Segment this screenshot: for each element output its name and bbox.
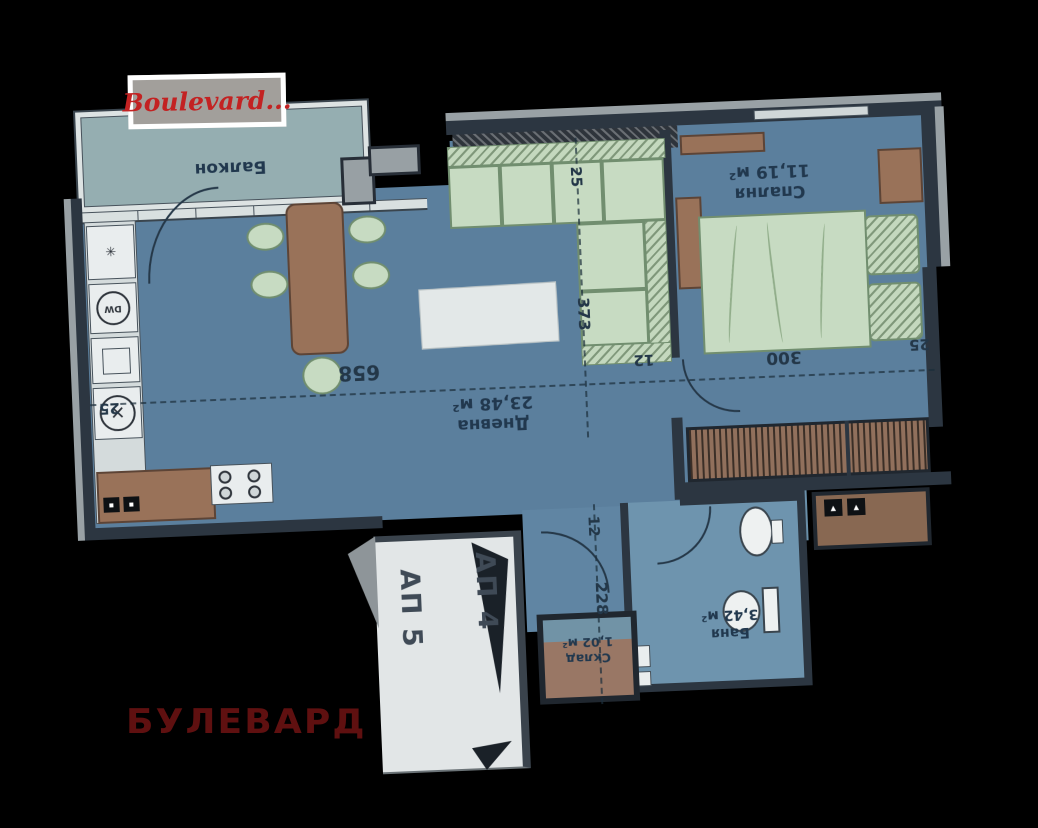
unit-label-ap4: АП 4 xyxy=(469,551,503,632)
sofa-seat xyxy=(576,221,647,292)
panel-icon: ▪ xyxy=(109,500,115,509)
shaft-icon: ▲ xyxy=(830,504,836,512)
dim-sofa-inset: 25 xyxy=(566,156,586,197)
pillow xyxy=(867,281,923,341)
cooktop xyxy=(210,463,274,506)
corridor-wedge xyxy=(347,536,379,629)
bath-label: Баня 3,42 м² xyxy=(674,603,785,643)
pillow xyxy=(864,213,920,275)
bed-blanket xyxy=(698,210,872,355)
panel-icon: ▪ xyxy=(129,499,135,508)
shaft-box: ▲ xyxy=(824,499,843,517)
shaft-box: ▲ xyxy=(847,498,866,516)
wardrobe xyxy=(686,417,931,482)
apartment-floorplan: ✳ DW ✕ ▪ ▪ xyxy=(51,33,991,800)
dim-living-depth: 373 xyxy=(574,292,595,337)
dim-living-width: 658 xyxy=(319,359,400,386)
watermark-box: Boulevard... xyxy=(128,73,287,130)
rug xyxy=(418,281,559,349)
nightstand-right xyxy=(877,147,923,204)
service-shaft xyxy=(812,487,932,550)
right-wall-notch xyxy=(936,265,975,424)
watermark-text: Boulevard... xyxy=(122,85,291,117)
fridge: ✳ xyxy=(86,224,136,280)
balcony-name: Балкон xyxy=(194,156,267,179)
bedroom-label: Спалня 11,19 м² xyxy=(694,156,846,205)
dishwasher-icon: DW xyxy=(96,290,131,325)
unit-label-ap5: АП 5 xyxy=(393,568,427,649)
dim-door-width: 12 xyxy=(624,350,665,370)
dim-passage-width: 12 xyxy=(584,508,603,545)
floorplan-scene: ✳ DW ✕ ▪ ▪ xyxy=(0,0,1038,828)
brand-text: БУЛЕВАРД xyxy=(126,702,367,742)
dining-table xyxy=(285,201,349,355)
sink-pedestal xyxy=(771,519,784,543)
dim-bedroom-wall: 25 xyxy=(899,335,940,355)
sofa-corner-seat xyxy=(602,158,667,223)
dim-bedroom-width: 300 xyxy=(754,346,815,368)
dishwasher-label: DW xyxy=(104,303,122,314)
dishwasher: DW xyxy=(88,282,138,334)
shaft-icon: ▲ xyxy=(853,503,859,511)
oven xyxy=(91,336,141,384)
electrical-panel-right: ▪ xyxy=(123,496,140,512)
living-room-label: Дневна 23,48 м² xyxy=(427,389,559,437)
step-wall-b xyxy=(368,144,421,176)
bedroom-dresser xyxy=(680,132,766,156)
kitchen-corner-counter xyxy=(96,467,216,524)
storage-label: Склад 1,02 м² xyxy=(541,633,634,668)
dim-kitchen-wall: 25 xyxy=(89,399,130,419)
sofa-seat xyxy=(448,165,503,229)
oven-inner xyxy=(102,348,131,375)
sofa-seat xyxy=(500,163,555,227)
hob-star-icon: ✳ xyxy=(105,245,117,260)
electrical-panel-left: ▪ xyxy=(103,497,120,513)
dim-entry-depth: 228 xyxy=(591,573,612,624)
